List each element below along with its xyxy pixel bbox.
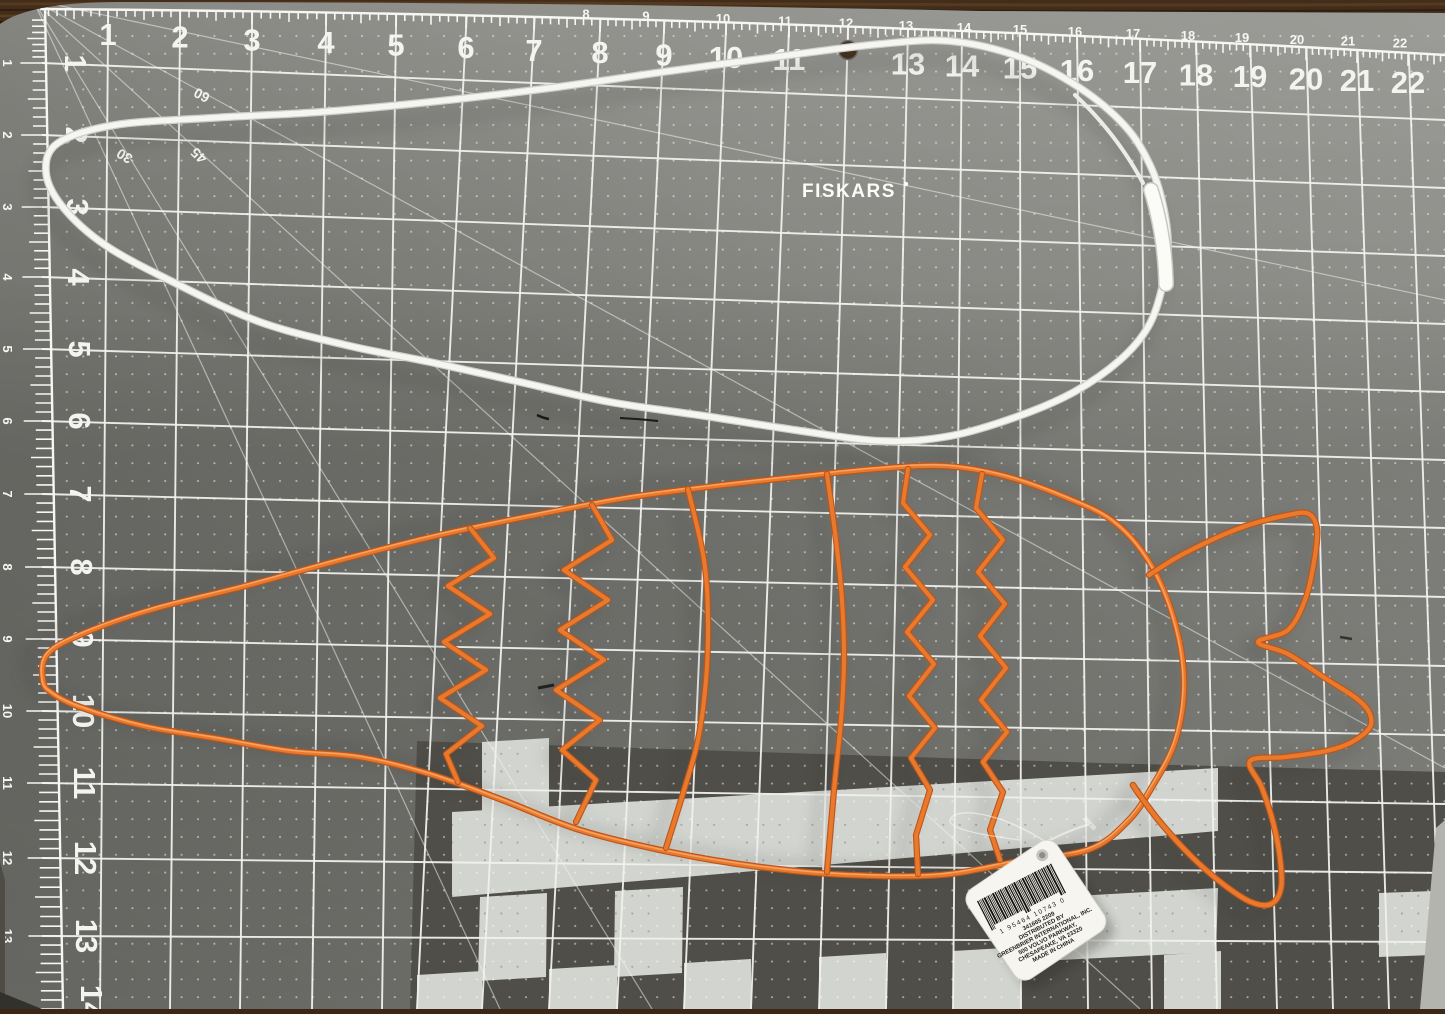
svg-text:18: 18	[1181, 28, 1195, 43]
svg-text:8: 8	[64, 558, 99, 575]
svg-text:FISKARS: FISKARS	[802, 181, 896, 202]
svg-text:16: 16	[1068, 24, 1082, 39]
svg-text:13: 13	[891, 47, 925, 82]
svg-text:21: 21	[1341, 34, 1355, 49]
svg-text:4: 4	[317, 25, 335, 60]
svg-text:7: 7	[63, 485, 98, 502]
svg-text:7: 7	[0, 490, 15, 497]
svg-text:4: 4	[61, 268, 96, 286]
svg-text:1: 1	[99, 17, 116, 52]
svg-text:10: 10	[0, 704, 15, 718]
svg-text:6: 6	[62, 412, 97, 429]
svg-text:2: 2	[0, 131, 15, 138]
svg-text:20: 20	[1289, 61, 1323, 96]
svg-text:20: 20	[1290, 32, 1304, 47]
svg-text:7: 7	[525, 33, 542, 68]
svg-text:14: 14	[957, 20, 972, 35]
svg-text:5: 5	[387, 28, 404, 63]
svg-text:13: 13	[899, 18, 913, 33]
svg-text:8: 8	[0, 563, 15, 570]
svg-text:17: 17	[1123, 55, 1157, 90]
svg-text:10: 10	[716, 11, 730, 26]
svg-text:2: 2	[171, 20, 188, 55]
svg-text:9: 9	[0, 635, 15, 642]
svg-text:6: 6	[457, 30, 474, 65]
svg-text:12: 12	[0, 851, 15, 865]
svg-text:5: 5	[62, 340, 97, 357]
svg-text:3: 3	[243, 22, 260, 57]
svg-text:12: 12	[839, 16, 853, 31]
svg-text:19: 19	[1235, 30, 1249, 45]
svg-text:22: 22	[1393, 36, 1407, 51]
svg-text:21: 21	[1340, 63, 1374, 98]
svg-text:11: 11	[0, 776, 15, 790]
svg-text:9: 9	[642, 9, 649, 24]
svg-text:1: 1	[58, 54, 93, 71]
svg-text:19: 19	[1233, 59, 1267, 94]
svg-text:18: 18	[1179, 57, 1213, 92]
svg-text:12: 12	[68, 841, 103, 875]
svg-text:6: 6	[0, 417, 15, 424]
svg-text:17: 17	[1126, 26, 1140, 41]
svg-text:10: 10	[709, 40, 743, 75]
svg-text:15: 15	[1013, 22, 1027, 37]
svg-text:11: 11	[778, 14, 792, 29]
svg-text:11: 11	[67, 767, 102, 800]
svg-text:8: 8	[582, 6, 589, 21]
svg-text:3: 3	[0, 203, 15, 210]
svg-text:5: 5	[0, 345, 15, 352]
svg-text:1: 1	[0, 59, 15, 66]
svg-text:22: 22	[1391, 65, 1425, 100]
svg-text:14: 14	[74, 985, 109, 1009]
svg-text:8: 8	[591, 35, 608, 70]
svg-text:4: 4	[0, 273, 15, 281]
svg-text:13: 13	[69, 919, 104, 953]
